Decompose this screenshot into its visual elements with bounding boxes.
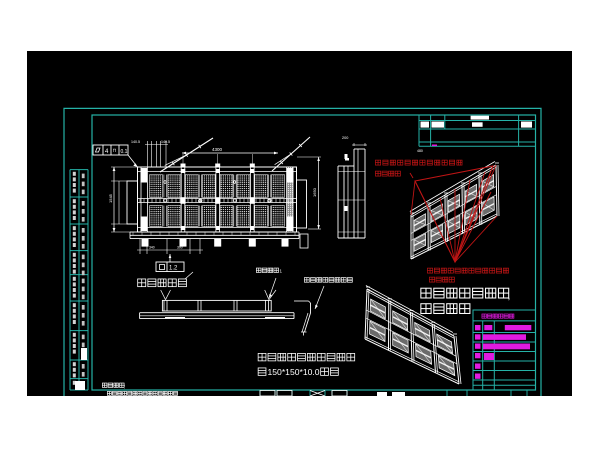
svg-text:1545: 1545: [108, 193, 113, 203]
svg-text:200: 200: [342, 136, 348, 140]
svg-text:140.5: 140.5: [161, 140, 170, 144]
svg-text:1: 1: [280, 269, 283, 274]
svg-text:,: ,: [508, 291, 511, 302]
svg-text:150*150*10.0: 150*150*10.0: [268, 367, 320, 377]
svg-text:4300: 4300: [212, 147, 223, 152]
svg-text:4: 4: [105, 149, 109, 155]
svg-text:300: 300: [177, 246, 183, 250]
svg-text:0.1: 0.1: [121, 149, 128, 155]
svg-text:1.2: 1.2: [169, 266, 178, 272]
svg-text:⊓: ⊓: [113, 148, 117, 154]
svg-text:1650: 1650: [312, 187, 317, 197]
svg-text:340: 340: [149, 246, 155, 250]
svg-text:480: 480: [417, 149, 423, 153]
svg-text:140.5: 140.5: [131, 140, 140, 144]
